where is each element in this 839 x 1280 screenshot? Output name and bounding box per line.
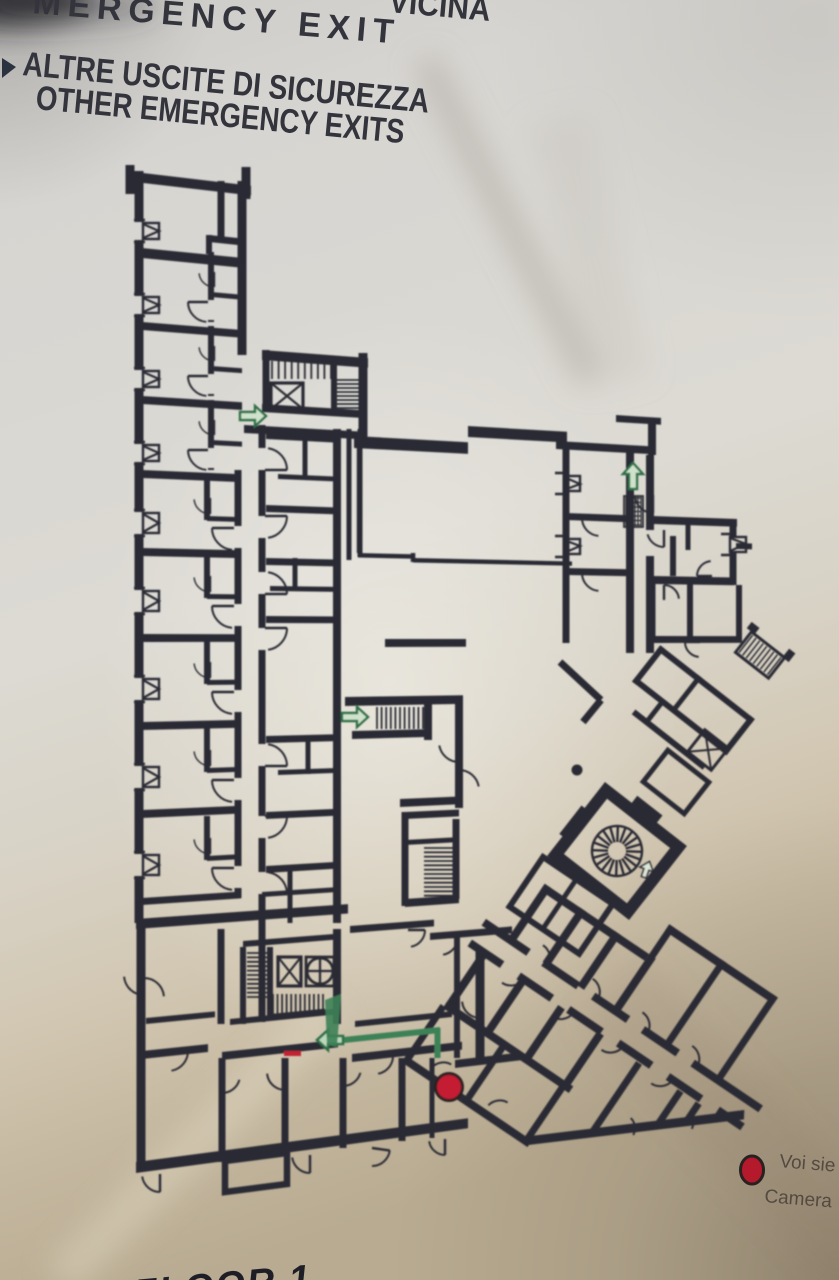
svg-text:Voi sie: Voi sie xyxy=(779,1151,836,1176)
